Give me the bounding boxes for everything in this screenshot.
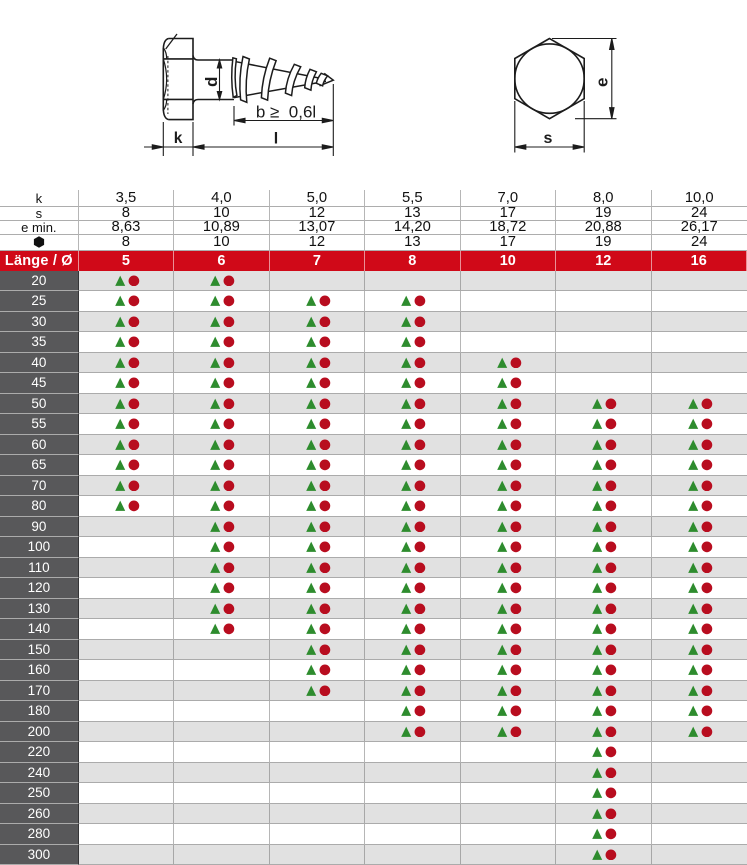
svg-text:s: s bbox=[544, 130, 553, 147]
svg-text:d: d bbox=[202, 77, 221, 87]
svg-text:l: l bbox=[274, 131, 278, 148]
svg-text:b ≥ 0,6l: b ≥ 0,6l bbox=[256, 103, 316, 122]
svg-text:k: k bbox=[174, 130, 183, 147]
svg-text:e: e bbox=[593, 78, 612, 87]
